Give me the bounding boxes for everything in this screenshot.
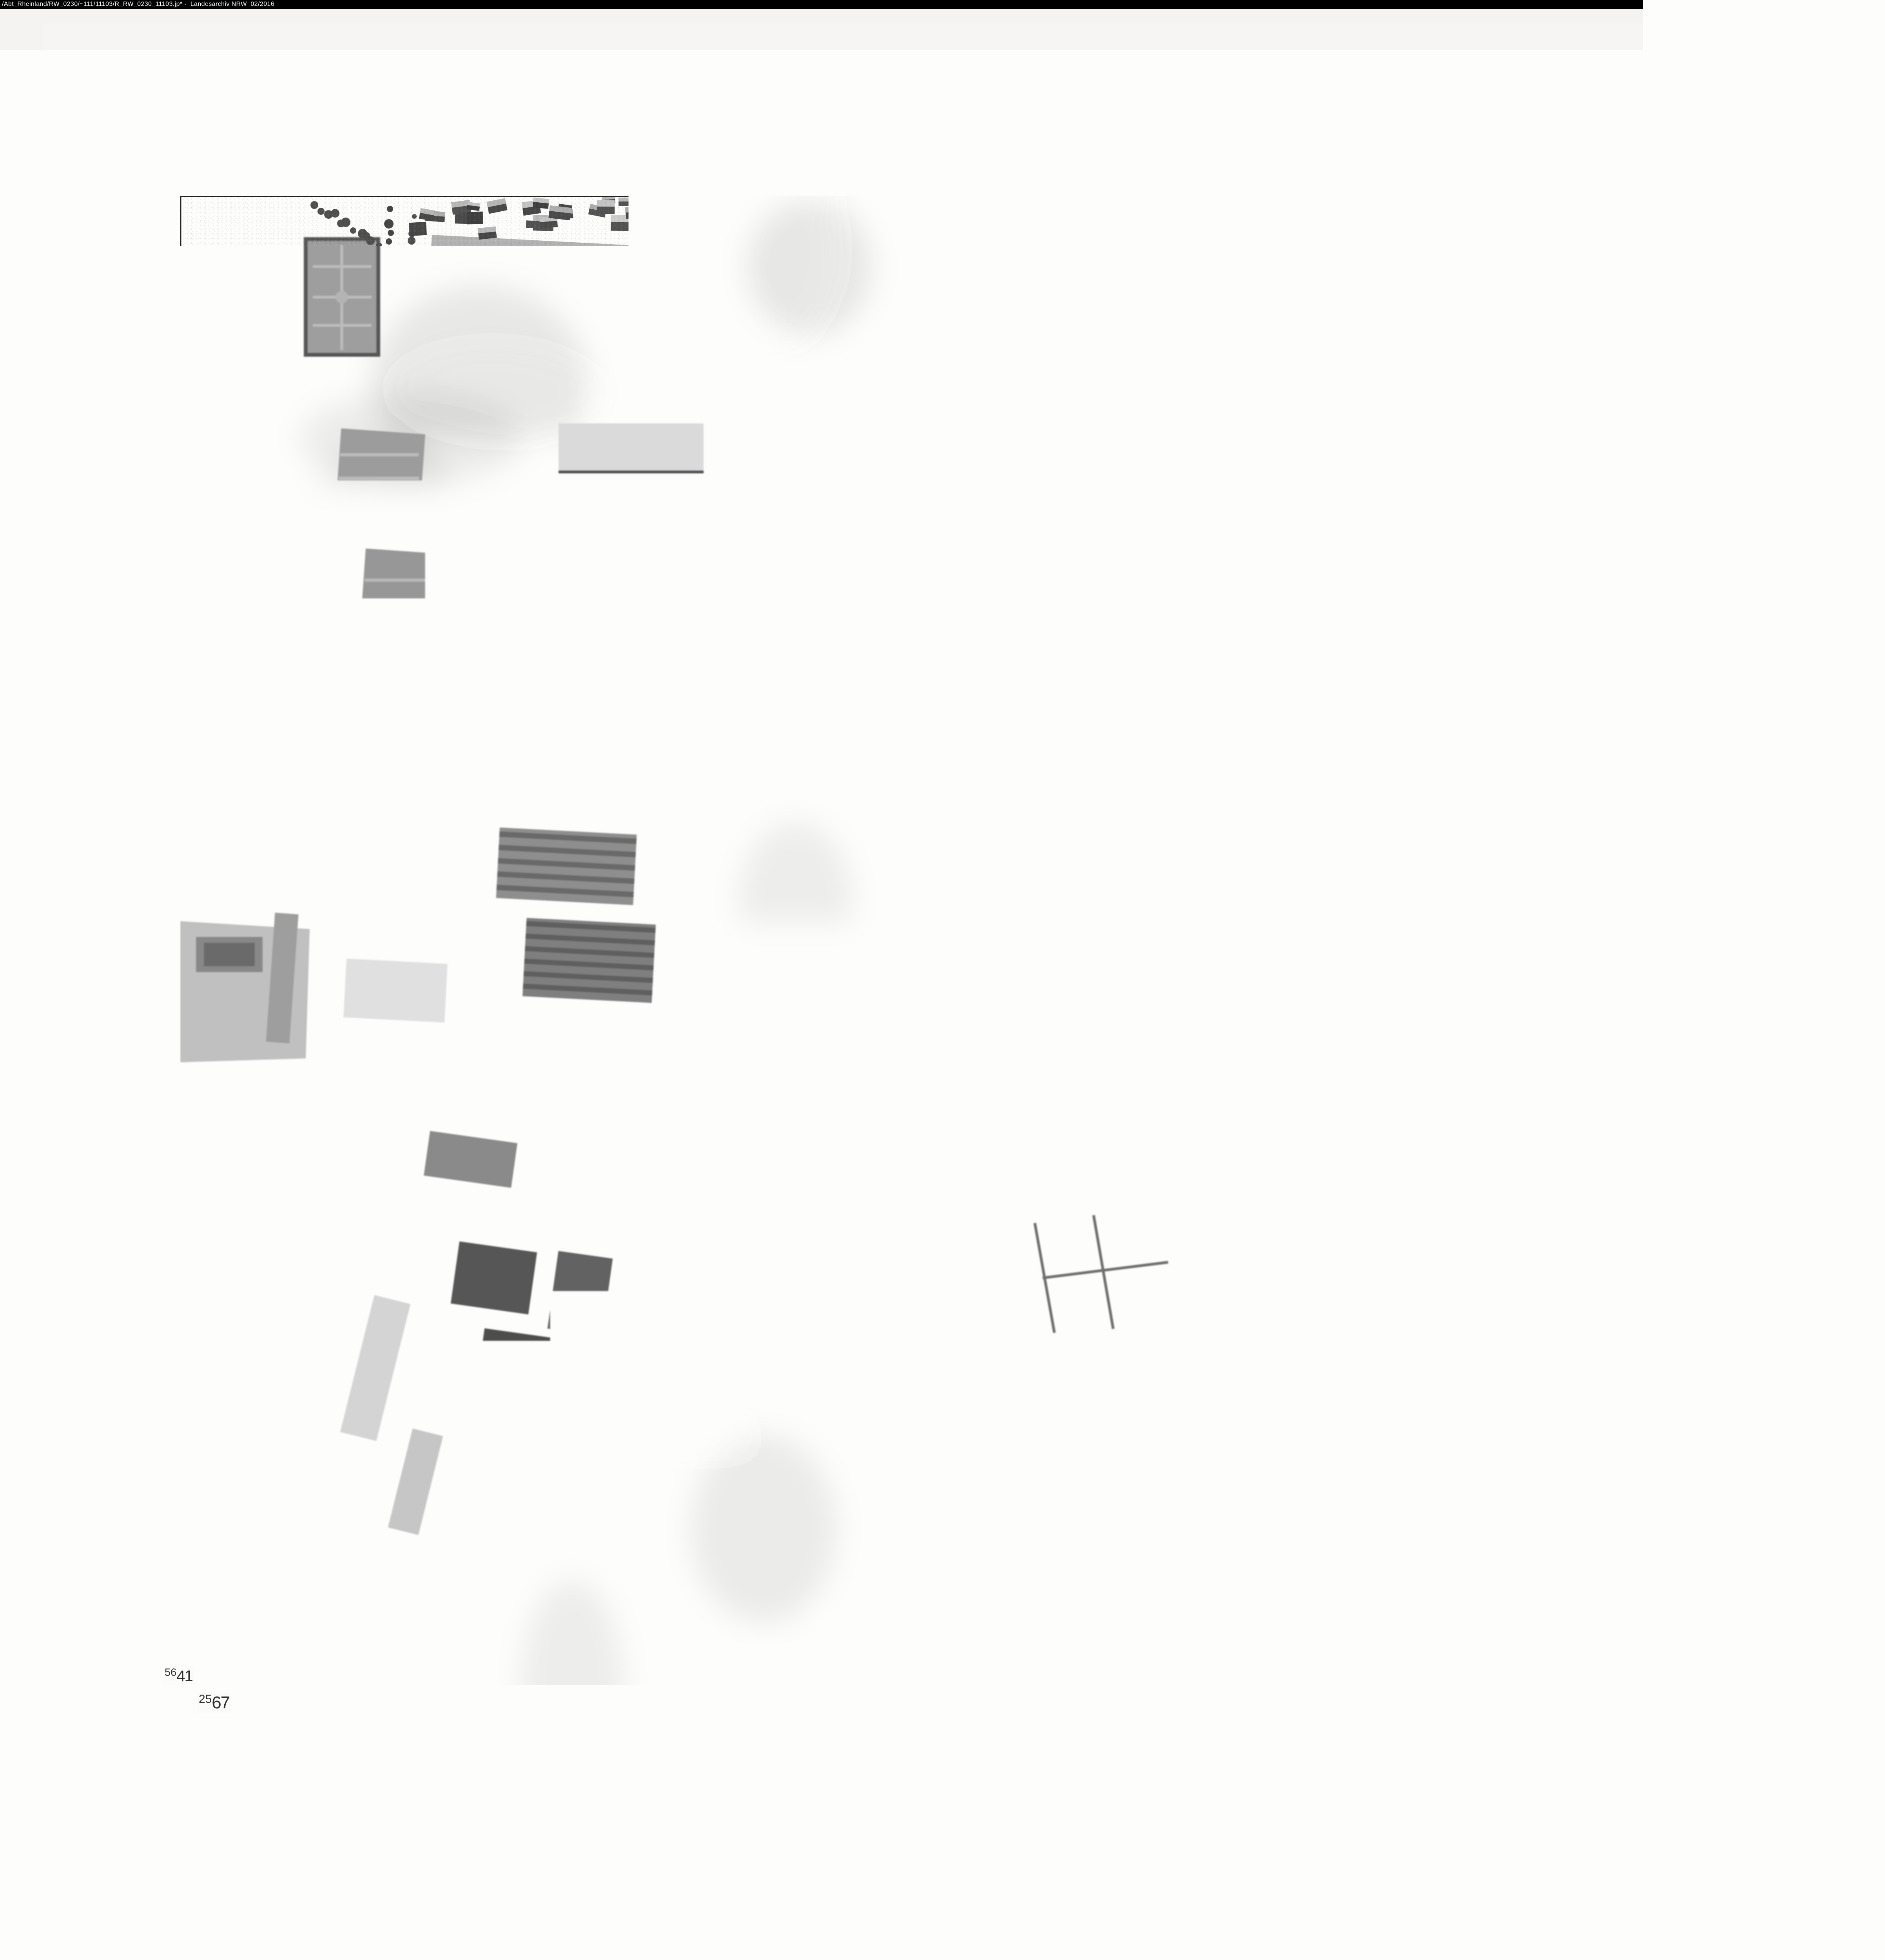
svg-text:150: 150 [998,1835,1018,1848]
svg-text:0: 0 [782,1835,788,1848]
svg-text:250m: 250m [1151,1835,1181,1848]
svg-text:200: 200 [1072,1835,1092,1848]
svg-text:100: 100 [925,1835,945,1848]
svg-text:50: 50 [854,1835,867,1848]
svg-text:50: 50 [705,1835,718,1848]
